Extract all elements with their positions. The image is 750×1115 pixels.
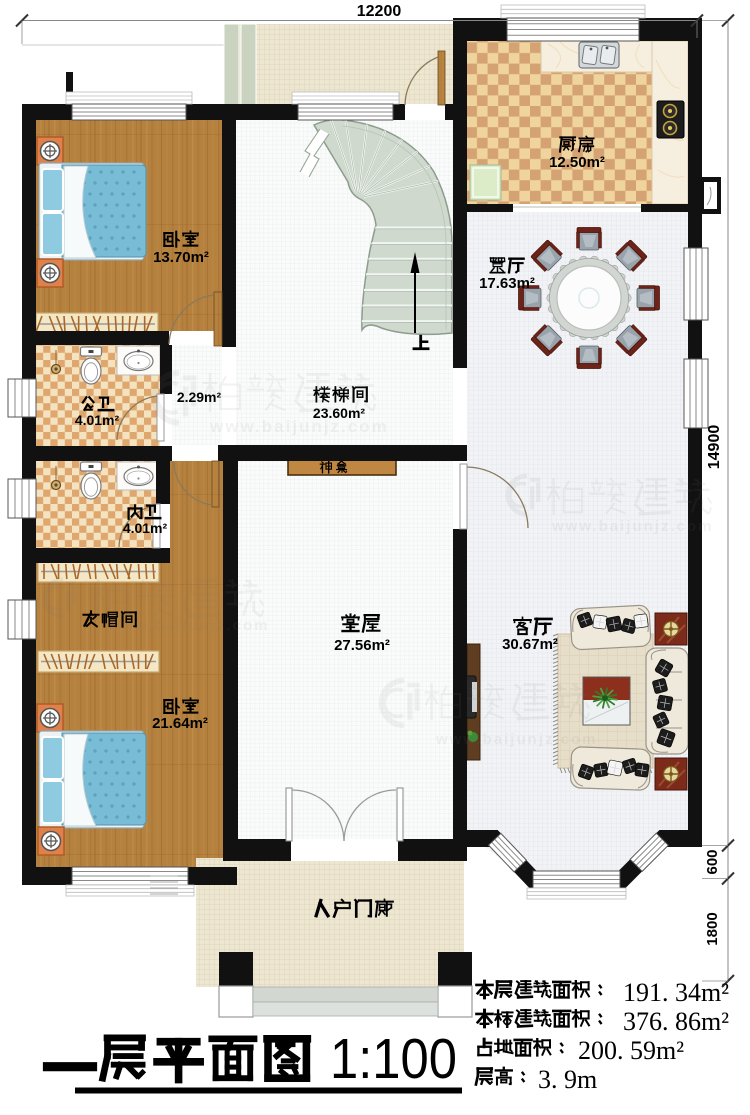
svg-text:376. 86m²: 376. 86m² xyxy=(623,1007,729,1036)
svg-text:27.56m²: 27.56m² xyxy=(334,637,390,654)
svg-text:www.baijunjz.com: www.baijunjz.com xyxy=(209,417,389,436)
svg-text:13.70m²: 13.70m² xyxy=(153,249,209,266)
svg-text:4.01m²: 4.01m² xyxy=(75,412,120,428)
svg-text:12.50m²: 12.50m² xyxy=(549,154,605,171)
svg-text:1:100: 1:100 xyxy=(330,1027,457,1090)
svg-text:17.63m²: 17.63m² xyxy=(479,275,535,292)
svg-text:14900: 14900 xyxy=(706,425,723,470)
svg-text:200. 59m²: 200. 59m² xyxy=(578,1036,684,1065)
svg-text:30.67m²: 30.67m² xyxy=(502,636,558,653)
svg-text:191. 34m²: 191. 34m² xyxy=(623,978,729,1007)
svg-text:21.64m²: 21.64m² xyxy=(152,715,208,732)
svg-text:1800: 1800 xyxy=(704,912,721,945)
svg-text:4.01m²: 4.01m² xyxy=(123,520,168,536)
svg-text:600: 600 xyxy=(704,849,721,874)
svg-text:www.baijunjz.com: www.baijunjz.com xyxy=(551,518,713,535)
svg-text:12200: 12200 xyxy=(357,3,402,20)
svg-text:www.baijunjz.com: www.baijunjz.com xyxy=(435,731,597,748)
svg-text:3. 9m: 3. 9m xyxy=(538,1065,597,1094)
svg-text:www.baijunjz.com: www.baijunjz.com xyxy=(107,617,269,634)
